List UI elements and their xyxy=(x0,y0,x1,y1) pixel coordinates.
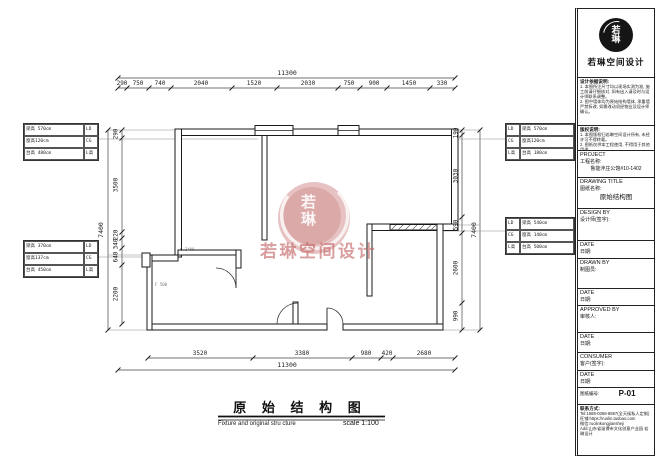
dim-right-seg: 590 xyxy=(453,220,460,231)
field-label-cn: 制图员: xyxy=(580,267,652,273)
titleblock-section-design-by: DESIGN BY 设计师(签字): xyxy=(578,209,654,241)
dim-top-seg: 900 xyxy=(369,80,380,87)
note-cell: LD xyxy=(84,124,98,136)
dim-left-seg: 3500 xyxy=(113,178,120,192)
dim-left-overall: 7400 xyxy=(97,222,105,238)
dim-left-seg: 640 xyxy=(113,252,120,263)
watermark-stamp-chars: 若琳 xyxy=(301,194,325,228)
drawing-sheet: 11300 290 750 740 2040 1520 2030 750 900… xyxy=(0,0,660,462)
note-cell: LD xyxy=(506,124,520,136)
titleblock-section-date-2: DATE 日期: xyxy=(578,289,654,306)
plan-title-en: Fixture and original stru cture xyxy=(218,421,296,427)
dim-left-seg: 290 xyxy=(113,129,120,140)
note-cell: L高 xyxy=(506,242,520,254)
plan-title: 原 始 结 构 图 xyxy=(210,397,390,416)
plan-note: C 2400 xyxy=(180,247,194,252)
notes-line: 1. 本图所注尺寸均以现场实测为准, 施工前请仔细核对, 如有出入请及时与设计师… xyxy=(580,84,652,99)
dim-top-seg: 2040 xyxy=(194,80,208,87)
field-label-cn: 日期: xyxy=(580,379,652,385)
titleblock-section-date-4: DATE 日期: xyxy=(578,371,654,388)
sheet-number-value: P-01 xyxy=(602,389,652,398)
dim-top-overall: 11300 xyxy=(277,69,297,77)
note-cell: LD xyxy=(84,241,98,253)
dim-bottom-seg: 2680 xyxy=(417,350,431,357)
field-label-cn: 日期: xyxy=(580,249,652,255)
notes-line: 2. 图纸仅供本工程使用, 不得用于其他用途。 xyxy=(580,142,652,151)
dim-bottom-seg: 980 xyxy=(361,350,372,357)
dim-right-seg: 2600 xyxy=(453,261,460,275)
titleblock-section-date-3: DATE 日期: xyxy=(578,333,654,353)
note-cell: CG xyxy=(506,230,520,242)
dim-bottom-seg: 420 xyxy=(382,350,393,357)
dim-top-seg: 750 xyxy=(133,80,144,87)
titleblock-section-project: PROJECT 工程名称: 鲁能泮庄公馆#10-1402 xyxy=(578,151,654,178)
dim-top-seg: 740 xyxy=(155,80,166,87)
beam-note-box-right-top: LD梁高 570cm CG窗高120cm L高台高 180cm xyxy=(505,123,575,161)
dim-right-seg: 190 xyxy=(453,128,460,139)
field-label-cn: 日期: xyxy=(580,297,652,303)
titleblock-notes-copyright: 版权说明: 1. 本图版权归若琳空间设计所有, 未经许可不得转载。 2. 图纸仅… xyxy=(578,126,654,151)
note-cell: 窗高 140cm xyxy=(520,230,574,242)
brand-stamp-chars: 若琳 xyxy=(611,26,622,44)
titleblock-logo-section: 若琳 若琳空间设计 xyxy=(578,9,654,78)
field-label-cn: 审核人: xyxy=(580,314,652,320)
dim-top-seg: 330 xyxy=(437,80,448,87)
door-symbols xyxy=(216,268,343,324)
dim-top-seg: 1520 xyxy=(247,80,261,87)
drawing-title-value: 原始结构图 xyxy=(580,195,652,201)
beam-note-box-left-bottom: 梁高 370cmLD 窗高137cmCG 台高 450cmL高 xyxy=(23,240,99,278)
note-cell: 台高 480cm xyxy=(24,148,84,160)
notes-line: 1. 本图版权归若琳空间设计所有, 未经许可不得转载。 xyxy=(580,132,652,142)
titleblock-section-drawn-by: DRAWN BY 制图员: xyxy=(578,259,654,289)
note-cell: CG xyxy=(84,253,98,265)
field-label-cn: 设计师(签字): xyxy=(580,217,652,223)
beam-note-box-left-top: 梁高 570cmLD 窗高120cmCG 台高 480cmL高 xyxy=(23,123,99,161)
dim-top-seg: 2030 xyxy=(301,80,315,87)
titleblock-notes-design-basis: 设计依据说明: 1. 本图所注尺寸均以现场实测为准, 施工前请仔细核对, 如有出… xyxy=(578,78,654,126)
dim-left-seg: 340 xyxy=(113,239,120,250)
project-name: 鲁能泮庄公馆#10-1402 xyxy=(580,166,652,172)
note-cell: L高 xyxy=(506,148,520,160)
hatched-window xyxy=(390,225,437,231)
note-cell: 台高 180cm xyxy=(520,148,574,160)
watermark-text: 若琳空间设计 xyxy=(260,237,377,262)
notes-line: 2. 图中墙体均为原始结构墙体, 承重墙严禁拆改, 如需改动须经物业及设计师确认… xyxy=(580,99,652,114)
field-label-cn: 客户(签字): xyxy=(580,361,652,367)
title-block: 若琳 若琳空间设计 设计依据说明: 1. 本图所注尺寸均以现场实测为准, 施工前… xyxy=(575,8,655,456)
note-cell: 窗高137cm xyxy=(24,253,84,265)
dim-right-seg: 990 xyxy=(453,311,460,322)
field-label-cn: 工程名称: xyxy=(580,159,652,165)
note-cell: 窗高120cm xyxy=(24,136,84,148)
note-cell: 梁高 370cm xyxy=(24,241,84,253)
titleblock-section-consumer: CONSUMER 客户(签字): xyxy=(578,353,654,371)
dim-left-seg: 2200 xyxy=(113,287,120,301)
note-cell: 台高 500cm xyxy=(520,242,574,254)
note-cell: 梁高 570cm xyxy=(24,124,84,136)
dim-right-overall: 7400 xyxy=(470,222,478,238)
note-cell: CG xyxy=(506,136,520,148)
note-cell: LD xyxy=(506,218,520,230)
beam-note-box-right-bottom: LD梁高 540cm CG窗高 140cm L高台高 500cm xyxy=(505,217,575,255)
titleblock-section-approved-by: APPROVED BY 审核人: xyxy=(578,306,654,333)
contact-line: Add:山东省淄博市文化创意产业园 若琳设计 xyxy=(580,426,652,436)
note-cell: L高 xyxy=(84,265,98,277)
dim-right-seg: 3030 xyxy=(453,169,460,183)
brand-stamp-icon: 若琳 xyxy=(599,18,633,52)
brand-name: 若琳空间设计 xyxy=(587,56,644,68)
titleblock-section-date-1: DATE 日期: xyxy=(578,241,654,259)
sheet-number-label: 图纸编号: xyxy=(580,391,599,397)
dim-bottom-seg: 3520 xyxy=(193,350,207,357)
note-cell: L高 xyxy=(84,148,98,160)
note-cell: 窗高120cm xyxy=(520,136,574,148)
note-cell: 梁高 570cm xyxy=(520,124,574,136)
dim-bottom-seg: 3380 xyxy=(295,350,309,357)
dim-bottom-overall: 11300 xyxy=(277,361,297,369)
dim-top-seg: 1450 xyxy=(402,80,416,87)
dim-top-seg: 750 xyxy=(344,80,355,87)
plan-note: F 500 xyxy=(155,282,167,287)
plan-scale: scale 1:100 xyxy=(343,420,379,427)
titleblock-section-contact: 联系方式: Tel:1588-0368-8867(全天候私人定制) 旺铺:htt… xyxy=(578,405,654,455)
note-cell: 梁高 540cm xyxy=(520,218,574,230)
titleblock-section-drawing-title: DRAWING TITLE 图纸名称: 原始结构图 xyxy=(578,178,654,209)
note-cell: CG xyxy=(84,136,98,148)
dim-top-seg: 290 xyxy=(117,80,128,87)
note-cell: 台高 450cm xyxy=(24,265,84,277)
field-label-cn: 图纸名称: xyxy=(580,186,652,192)
field-label-cn: 日期: xyxy=(580,341,652,347)
titleblock-section-sheet-number: 图纸编号: P-01 xyxy=(578,388,654,405)
